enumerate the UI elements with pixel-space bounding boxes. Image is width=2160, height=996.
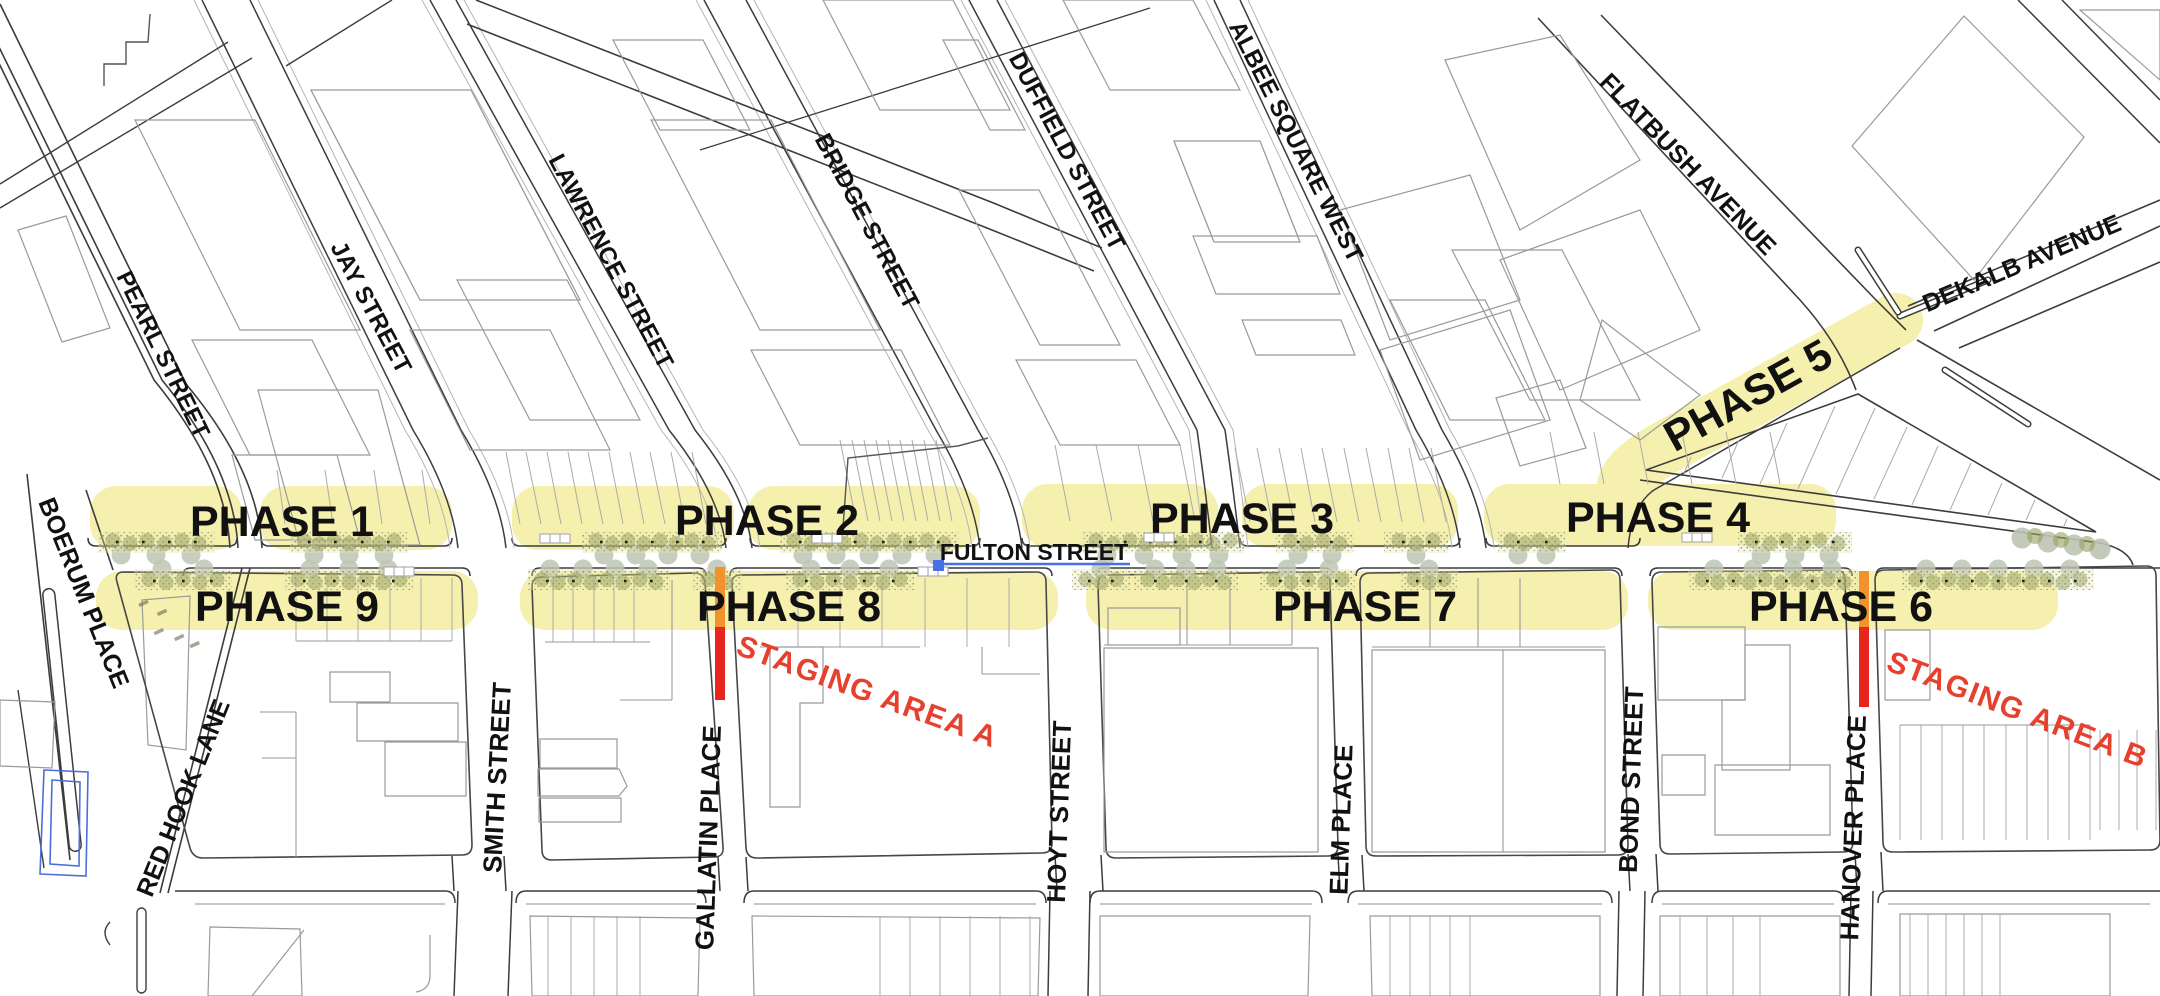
svg-text:FULTON STREET: FULTON STREET: [940, 539, 1128, 565]
svg-text:HOYT STREET: HOYT STREET: [1041, 720, 1077, 903]
svg-text:PHASE 7: PHASE 7: [1273, 583, 1457, 631]
svg-text:PHASE 4: PHASE 4: [1566, 494, 1750, 542]
svg-text:ELM PLACE: ELM PLACE: [1323, 744, 1358, 895]
svg-text:PHASE 8: PHASE 8: [697, 583, 881, 631]
svg-text:PHASE 3: PHASE 3: [1150, 495, 1334, 543]
svg-text:PHASE 1: PHASE 1: [190, 498, 374, 546]
svg-text:PHASE 6: PHASE 6: [1749, 583, 1933, 631]
svg-text:PHASE 9: PHASE 9: [195, 583, 379, 631]
svg-text:PHASE 2: PHASE 2: [675, 497, 859, 545]
